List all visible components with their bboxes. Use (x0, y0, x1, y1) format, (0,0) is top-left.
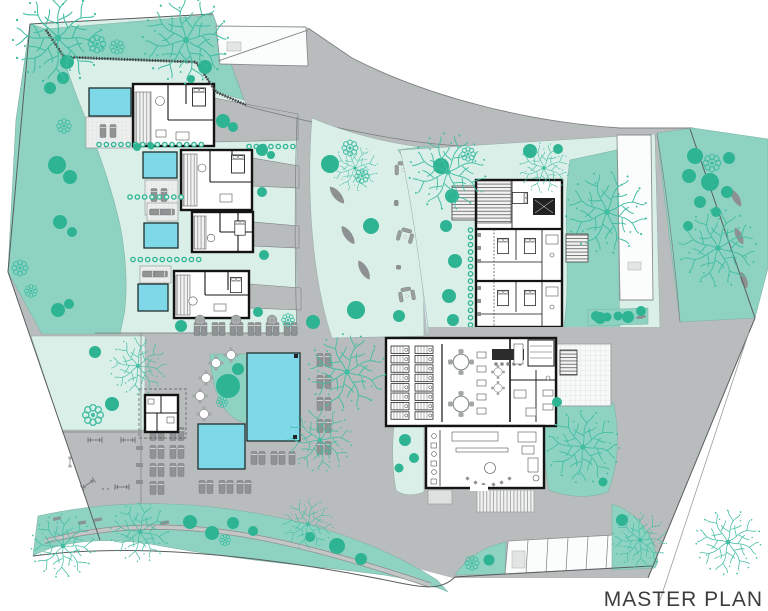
villa-2-pool (143, 152, 177, 178)
plaza-label (227, 42, 241, 51)
site-plan-svg: MASTER PLAN (0, 0, 768, 611)
south-terrace (477, 490, 534, 512)
villa-4 (138, 266, 249, 318)
kids-pool (198, 424, 245, 469)
gym-lawn-pocket (31, 336, 145, 430)
villa-1-pool (89, 88, 131, 116)
exterior-stair (566, 234, 588, 262)
clubhouse-west-pocket (393, 423, 424, 495)
court-label (628, 262, 641, 270)
plan-title: MASTER PLAN (604, 588, 763, 611)
villa-1 (86, 84, 214, 148)
clubhouse (386, 338, 617, 512)
master-plan-drawing: MASTER PLAN (0, 0, 768, 611)
parking-label (512, 551, 525, 568)
villa-3-pool (144, 223, 178, 248)
pool-service-building (139, 389, 186, 438)
terrace-stair (560, 350, 577, 375)
roof-deck-stairs (477, 181, 511, 223)
tree-icon (690, 504, 767, 580)
villa-4-pool (138, 284, 168, 311)
